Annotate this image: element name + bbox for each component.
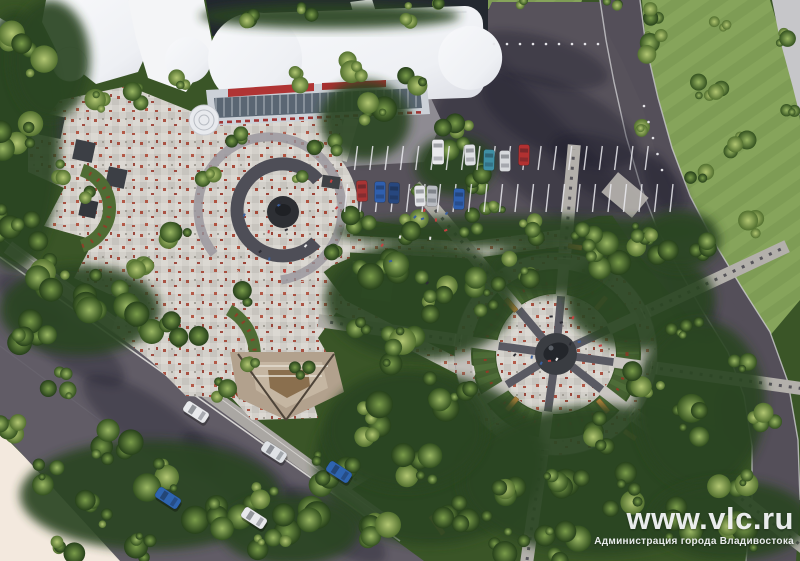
car-parked	[432, 139, 444, 164]
car-parked	[464, 144, 476, 165]
watermark-url: www.vlc.ru	[594, 503, 794, 534]
watermark: www.vlc.ru Администрация города Владивос…	[594, 503, 794, 547]
car-parked	[374, 181, 385, 202]
car-parked	[499, 150, 510, 171]
car-parked	[388, 182, 400, 203]
car-parked	[356, 180, 368, 201]
scene-canvas	[0, 0, 800, 561]
car-parked	[414, 185, 426, 206]
monument-highlight	[549, 346, 554, 351]
watermark-subtitle: Администрация города Владивостока	[594, 537, 794, 547]
car-parked	[426, 185, 437, 206]
aerial-render-vladivostok-park: www.vlc.ru Администрация города Владивос…	[0, 0, 800, 561]
car-parked	[518, 144, 529, 165]
car-parked	[453, 188, 465, 209]
car-parked	[483, 149, 495, 170]
